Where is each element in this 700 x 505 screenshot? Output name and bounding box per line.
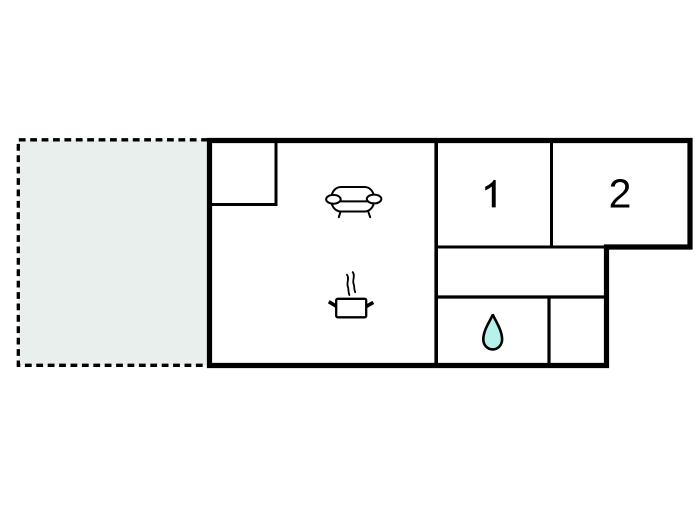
svg-text:2: 2 [609,171,632,217]
